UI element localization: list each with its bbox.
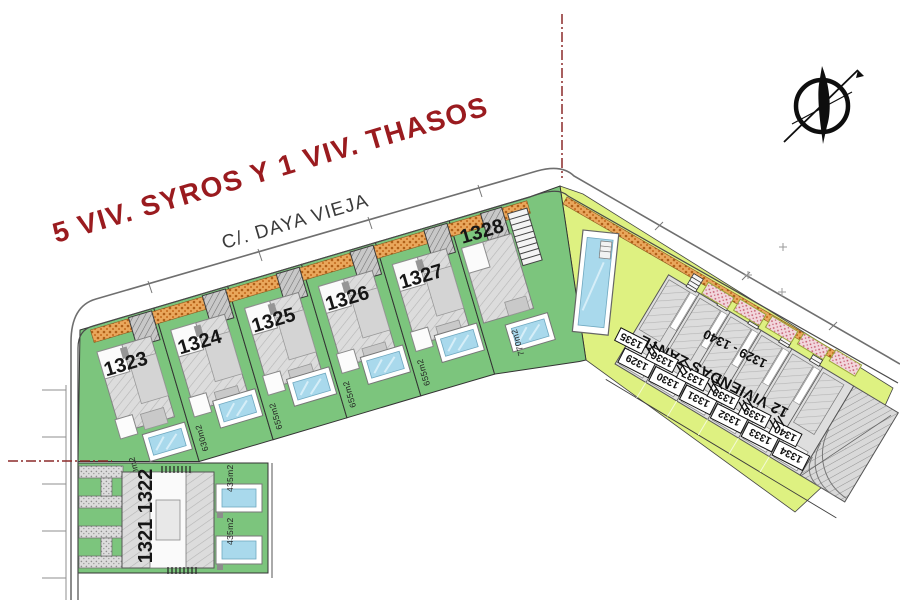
duplex-area-top: 435m2: [225, 465, 235, 493]
driveway-strip: [79, 466, 123, 478]
compass-north-icon: [784, 66, 864, 144]
driveway-connector: [101, 478, 112, 496]
duplex-inner: [156, 500, 180, 540]
driveway-strip: [79, 556, 123, 568]
driveway-connector: [101, 538, 112, 556]
duplex-number-label: 1321 1322: [135, 469, 157, 564]
site-plan-drawing: 1323 700m2 1324 630m2 1325 655m2 1326 65…: [0, 0, 900, 600]
survey-plus-marks: [744, 243, 787, 296]
duplex-area-bottom: 435m2: [225, 518, 235, 546]
driveway-strip: [79, 496, 123, 508]
street-name-label: C/. DAYA VIEJA: [219, 190, 371, 253]
street-parking-ladder: [42, 385, 66, 600]
driveway-strip: [79, 526, 123, 538]
site-plan-page: 1323 700m2 1324 630m2 1325 655m2 1326 65…: [0, 0, 900, 600]
